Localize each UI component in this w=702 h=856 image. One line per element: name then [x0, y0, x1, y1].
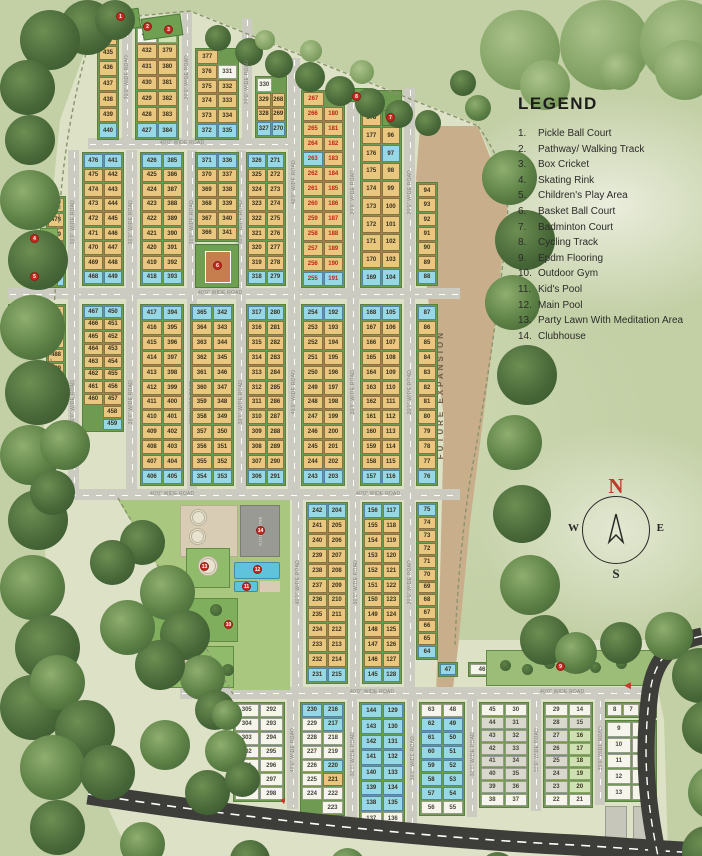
plot-389: 389	[163, 212, 183, 226]
plot-216: 216	[323, 704, 343, 717]
tree-icon	[493, 485, 551, 543]
entrance-arrow-icon: ◀	[624, 681, 631, 690]
plot-238: 238	[308, 564, 327, 578]
plot-460: 460	[84, 394, 103, 406]
plot-184: 184	[324, 167, 344, 181]
plot-372: 372	[197, 124, 217, 138]
plot-73: 73	[418, 530, 436, 542]
tree-icon	[5, 115, 55, 165]
plot-218: 218	[323, 732, 343, 745]
plot-group-105-168: 1681051671061661071651081641091631101621…	[360, 304, 402, 486]
plot-356: 356	[192, 440, 212, 454]
tree-icon	[140, 720, 190, 770]
plot-446: 446	[104, 227, 123, 241]
plot-383: 383	[158, 107, 178, 122]
road-label: 30'0" WIDE ROAD	[407, 370, 413, 414]
road-label: 30'0" WIDE ROAD	[128, 380, 134, 424]
plot-90: 90	[418, 242, 436, 255]
plot-244: 244	[303, 455, 323, 469]
road-label: 40'0" WIDE ROAD	[350, 689, 394, 695]
plot-group-88-94: 94939291908988	[416, 182, 438, 286]
plot-228: 228	[302, 732, 322, 745]
road-label: 30'0" WIDE ROAD	[70, 200, 76, 244]
plot-162: 162	[362, 396, 381, 410]
plot-139: 139	[361, 781, 382, 795]
plot-258: 258	[303, 227, 323, 241]
plot-235: 235	[308, 608, 327, 622]
plot-201: 201	[324, 440, 344, 454]
plot-167: 167	[362, 321, 381, 335]
plot-350: 350	[213, 425, 233, 439]
plot-307: 307	[248, 455, 266, 469]
plot-120: 120	[383, 549, 401, 563]
road-label: 30'0" WIDE ROAD	[70, 380, 76, 424]
plot-318: 318	[248, 271, 266, 285]
plot-31: 31	[505, 717, 528, 729]
marker-badminton: 7	[386, 113, 395, 122]
legend-panel: LEGEND 1.Pickle Ball Court2.Pathway/ Wal…	[518, 94, 700, 344]
plot-82: 82	[418, 381, 436, 395]
plot-221: 221	[323, 773, 343, 786]
plot-57: 57	[421, 787, 442, 800]
plot-336: 336	[218, 154, 238, 168]
plot-83: 83	[418, 366, 436, 380]
plot-9: 9	[607, 722, 631, 737]
plot-group-418-426: 4263854253864243874233884223894213904203…	[140, 152, 184, 286]
plot-313: 313	[248, 366, 266, 380]
tree-icon	[210, 604, 222, 616]
plot-99: 99	[382, 181, 401, 198]
plot-296: 296	[260, 759, 284, 772]
plot-239: 239	[308, 549, 327, 563]
plot-13: 13	[607, 785, 631, 800]
plot-205: 205	[328, 519, 347, 533]
plot-438: 438	[99, 92, 117, 107]
plot-223: 223	[322, 801, 343, 814]
plot-34: 34	[505, 756, 528, 768]
plot-261: 261	[303, 182, 323, 196]
plot-344: 344	[213, 336, 233, 350]
tree-icon	[325, 76, 355, 106]
plot-351: 351	[213, 440, 233, 454]
tree-icon	[20, 735, 85, 800]
plot-136: 136	[383, 812, 404, 826]
plot-group-14-29: 29142815271626172518241923202221	[543, 702, 593, 808]
plot-289: 289	[267, 440, 285, 454]
plot-97: 97	[382, 145, 401, 162]
plot-group-450-467: 4674504664514654524644534634544624554614…	[82, 304, 124, 432]
plot-470: 470	[84, 241, 103, 255]
plot-426: 426	[142, 154, 162, 168]
plot-group-64-75: 757473727170696867666564	[416, 502, 438, 660]
plot-249: 249	[303, 381, 323, 395]
road-label: 40'0" WIDE ROAD	[291, 370, 297, 414]
plot-444: 444	[104, 198, 123, 212]
plot-466: 466	[84, 319, 103, 331]
legend-item: 8.Cycling Track	[518, 235, 700, 251]
plot-119: 119	[383, 534, 401, 548]
plot-319: 319	[248, 256, 266, 270]
plot-345: 345	[213, 351, 233, 365]
plot-56: 56	[421, 801, 442, 814]
plot-47: 47	[440, 664, 456, 675]
plot-425: 425	[142, 169, 162, 183]
plot-412: 412	[142, 381, 162, 395]
plot-92: 92	[418, 213, 436, 226]
plot-315: 315	[248, 336, 266, 350]
legend-item: 14.Clubhouse	[518, 329, 700, 345]
plot-309: 309	[248, 425, 266, 439]
plot-41: 41	[481, 756, 504, 768]
road-label: 30'0" WIDE ROAD	[124, 55, 130, 99]
compass-north: N	[608, 474, 623, 499]
plot-146: 146	[364, 653, 382, 667]
plot-group-192-254: 2541922531932521942511952501962491972481…	[301, 304, 345, 486]
plot-94: 94	[418, 184, 436, 197]
plot-338: 338	[218, 183, 238, 197]
plot-335: 335	[218, 124, 238, 138]
legend-item: 6.Basket Ball Court	[518, 204, 700, 220]
plot-429: 429	[137, 91, 157, 106]
marker-epdm-flooring: 9	[556, 662, 565, 671]
plot-464: 464	[84, 344, 103, 356]
plot-181: 181	[324, 122, 344, 136]
plot-374: 374	[197, 94, 217, 108]
plot-128: 128	[383, 668, 401, 682]
plot-226: 226	[302, 760, 322, 773]
plot-260: 260	[303, 197, 323, 211]
plot-469: 469	[84, 256, 103, 270]
plot-209: 209	[328, 579, 347, 593]
plot-96: 96	[382, 127, 401, 144]
compass-needle-icon	[607, 512, 625, 546]
plot-124: 124	[383, 608, 401, 622]
plot-88: 88	[418, 271, 436, 284]
plot-347: 347	[213, 381, 233, 395]
plot-333: 333	[218, 94, 238, 108]
legend-item: 11.Kid's Pool	[518, 282, 700, 298]
road-label: 40'0" WIDE ROAD	[295, 560, 301, 604]
tree-icon	[497, 345, 557, 405]
plot-27: 27	[545, 730, 568, 742]
plot-123: 123	[383, 594, 401, 608]
plot-group-1-13: 95104113122131	[605, 720, 657, 802]
plot-452: 452	[104, 331, 123, 343]
plot-368: 368	[197, 198, 217, 212]
plot-148: 148	[364, 623, 382, 637]
tree-icon	[185, 770, 230, 815]
plot-393: 393	[163, 271, 183, 285]
marker-basket-ball: 6	[213, 261, 222, 270]
plot-248: 248	[303, 396, 323, 410]
plot-294: 294	[260, 732, 284, 745]
plot-321: 321	[248, 227, 266, 241]
plot-423: 423	[142, 198, 162, 212]
plot-250: 250	[303, 366, 323, 380]
plot-366: 366	[197, 227, 217, 241]
plot-237: 237	[308, 579, 327, 593]
tree-icon	[5, 360, 70, 425]
plot-253: 253	[303, 321, 323, 335]
legend-items: 1.Pickle Ball Court2.Pathway/ Walking Tr…	[518, 126, 700, 344]
plot-169: 169	[362, 269, 381, 286]
plot-396: 396	[163, 336, 183, 350]
plot-187: 187	[324, 212, 344, 226]
plot-85: 85	[418, 336, 436, 350]
plot-451: 451	[104, 319, 123, 331]
plot-401: 401	[163, 410, 183, 424]
plot-150: 150	[364, 594, 382, 608]
plot-106: 106	[382, 321, 401, 335]
plot-324: 324	[248, 183, 266, 197]
plot-436: 436	[99, 61, 117, 76]
plot-233: 233	[308, 638, 327, 652]
plot-126: 126	[383, 638, 401, 652]
plot-145: 145	[364, 668, 382, 682]
tree-icon	[0, 60, 55, 115]
plot-397: 397	[163, 351, 183, 365]
plot-140: 140	[361, 766, 382, 780]
plot-404: 404	[163, 455, 183, 469]
plot-277: 277	[267, 241, 285, 255]
plot-5: 5	[632, 722, 656, 737]
plot-286: 286	[267, 396, 285, 410]
plot-272: 272	[267, 169, 285, 183]
plot-76: 76	[418, 470, 436, 484]
plot-168: 168	[362, 306, 381, 320]
plot-89: 89	[418, 256, 436, 269]
plot-415: 415	[142, 336, 162, 350]
road-label: 30'0" WIDE ROAD	[350, 370, 356, 414]
plot-175: 175	[362, 163, 381, 180]
plot-310: 310	[248, 410, 266, 424]
plot-153: 153	[364, 549, 382, 563]
plot-100: 100	[382, 198, 401, 215]
plot-127: 127	[383, 653, 401, 667]
plot-26: 26	[545, 743, 568, 755]
plot-361: 361	[192, 366, 212, 380]
plot-202: 202	[324, 455, 344, 469]
plot-149: 149	[364, 608, 382, 622]
plot-275: 275	[267, 212, 285, 226]
plot-441: 441	[104, 154, 123, 168]
road-label: 30'0" WIDE ROAD	[350, 170, 356, 214]
plot-157: 157	[362, 470, 381, 484]
plot-322: 322	[248, 212, 266, 226]
tree-icon	[255, 30, 275, 50]
tree-icon	[300, 40, 322, 62]
plot-413: 413	[142, 366, 162, 380]
plot-53: 53	[443, 773, 464, 786]
tree-icon	[450, 70, 476, 96]
plot-203: 203	[324, 470, 344, 484]
plot-32: 32	[505, 730, 528, 742]
plot-107: 107	[382, 336, 401, 350]
plot-380: 380	[158, 60, 178, 75]
plot-45: 45	[481, 704, 504, 716]
plot-399: 399	[163, 381, 183, 395]
plot-251: 251	[303, 351, 323, 365]
plot-217: 217	[323, 718, 343, 731]
plot-65: 65	[418, 633, 436, 645]
plot-243: 243	[303, 470, 323, 484]
plot-449: 449	[104, 271, 123, 285]
plot-241: 241	[308, 519, 327, 533]
plot-285: 285	[267, 381, 285, 395]
plot-442: 442	[104, 169, 123, 183]
plot-468: 468	[84, 271, 103, 285]
plot-12: 12	[607, 769, 631, 784]
plot-476: 476	[84, 154, 103, 168]
plot-20: 20	[569, 781, 592, 793]
utility-block	[605, 806, 627, 844]
road-label: 30'0" WIDE ROAD	[470, 732, 476, 776]
plot-200: 200	[324, 425, 344, 439]
plot-270: 270	[272, 122, 286, 136]
plot-391: 391	[163, 241, 183, 255]
compass-rose: N S W E	[566, 474, 666, 584]
plot-418: 418	[142, 271, 162, 285]
plot-430: 430	[137, 76, 157, 91]
plot-447: 447	[104, 241, 123, 255]
road-label: 30'0" WIDE ROAD	[598, 726, 604, 770]
tree-icon	[500, 555, 560, 615]
plot-117: 117	[383, 504, 401, 518]
road-label: 40'0" WIDE ROAD	[160, 140, 204, 146]
plot-63: 63	[421, 704, 442, 717]
plot-87: 87	[418, 306, 436, 320]
plot-164: 164	[362, 366, 381, 380]
plot-group-48-63: 63486249615060515952585357545655	[419, 702, 465, 816]
plot-410: 410	[142, 410, 162, 424]
plot-21: 21	[569, 794, 592, 806]
plot-spacer	[302, 801, 321, 814]
plot-48: 48	[443, 704, 464, 717]
plot-91: 91	[418, 227, 436, 240]
plot-155: 155	[364, 519, 382, 533]
plot-17: 17	[569, 743, 592, 755]
plot-293: 293	[260, 718, 284, 731]
plot-343: 343	[213, 321, 233, 335]
legend-item: 4.Skating Rink	[518, 173, 700, 189]
marker-cycling-track: 8	[352, 92, 361, 101]
road-label: 40'0" WIDE ROAD	[291, 160, 297, 204]
plot-264: 264	[303, 137, 323, 151]
plot-183: 183	[324, 152, 344, 166]
plot-189: 189	[324, 242, 344, 256]
plot-288: 288	[267, 425, 285, 439]
plot-144: 144	[361, 704, 382, 718]
plot-257: 257	[303, 242, 323, 256]
plot-255: 255	[303, 272, 323, 286]
plot-424: 424	[142, 183, 162, 197]
marker-main-pool: 12	[253, 565, 262, 574]
plot-15: 15	[569, 717, 592, 729]
plot-52: 52	[443, 760, 464, 773]
plot-group-30-45: 45304431433242334134403539363837	[479, 702, 529, 808]
plot-453: 453	[104, 344, 123, 356]
tree-icon	[688, 765, 702, 820]
plot-7: 7	[623, 704, 638, 716]
plot-297: 297	[260, 773, 284, 786]
plot-416: 416	[142, 321, 162, 335]
plot-459: 459	[103, 419, 123, 431]
plot-61: 61	[421, 732, 442, 745]
plot-311: 311	[248, 396, 266, 410]
legend-item: 1.Pickle Ball Court	[518, 126, 700, 142]
plot-29: 29	[545, 704, 568, 716]
plot-377: 377	[197, 50, 218, 64]
plot-75: 75	[418, 504, 436, 516]
plot-80: 80	[418, 410, 436, 424]
plot-462: 462	[84, 369, 103, 381]
tree-icon	[500, 660, 511, 671]
plot-284: 284	[267, 366, 285, 380]
plot-348: 348	[213, 396, 233, 410]
plot-471: 471	[84, 227, 103, 241]
plot-354: 354	[192, 470, 212, 484]
plot-151: 151	[364, 579, 382, 593]
plot-265: 265	[303, 122, 323, 136]
plot-185: 185	[324, 182, 344, 196]
plot-207: 207	[328, 549, 347, 563]
plot-24: 24	[545, 768, 568, 780]
plot-327: 327	[257, 122, 271, 136]
plot-220: 220	[323, 760, 343, 773]
plot-1: 1	[632, 785, 656, 800]
plot-458: 458	[103, 406, 123, 418]
marker-outdoor-gym: 10	[224, 620, 233, 629]
plot-224: 224	[302, 787, 322, 800]
plot-363: 363	[192, 336, 212, 350]
road-label: 30'0" WIDE ROAD	[410, 736, 416, 780]
plot-373: 373	[197, 109, 217, 123]
plot-81: 81	[418, 396, 436, 410]
plot-35: 35	[505, 768, 528, 780]
plot-199: 199	[324, 410, 344, 424]
plot-320: 320	[248, 241, 266, 255]
plot-455: 455	[104, 369, 123, 381]
plot-369: 369	[197, 183, 217, 197]
plot-281: 281	[267, 321, 285, 335]
plot-138: 138	[361, 796, 382, 810]
plot-427: 427	[137, 123, 157, 138]
plot-137: 137	[361, 812, 382, 826]
plot-68: 68	[418, 594, 436, 606]
plot-402: 402	[163, 425, 183, 439]
plot-475: 475	[84, 169, 103, 183]
plot-43: 43	[481, 730, 504, 742]
plot-384: 384	[158, 123, 178, 138]
plot-314: 314	[248, 351, 266, 365]
plot-125: 125	[383, 623, 401, 637]
plot-118: 118	[383, 519, 401, 533]
plot-213: 213	[328, 638, 347, 652]
plot-387: 387	[163, 183, 183, 197]
plot-186: 186	[324, 197, 344, 211]
plot-3: 3	[632, 754, 656, 769]
plot-382: 382	[158, 91, 178, 106]
plot-474: 474	[84, 183, 103, 197]
plot-60: 60	[421, 746, 442, 759]
plot-328: 328	[257, 108, 271, 122]
plot-262: 262	[303, 167, 323, 181]
plot-2: 2	[632, 769, 656, 784]
plot-165: 165	[362, 351, 381, 365]
plot-156: 156	[364, 504, 382, 518]
plot-180: 180	[324, 107, 344, 121]
plot-23: 23	[545, 781, 568, 793]
